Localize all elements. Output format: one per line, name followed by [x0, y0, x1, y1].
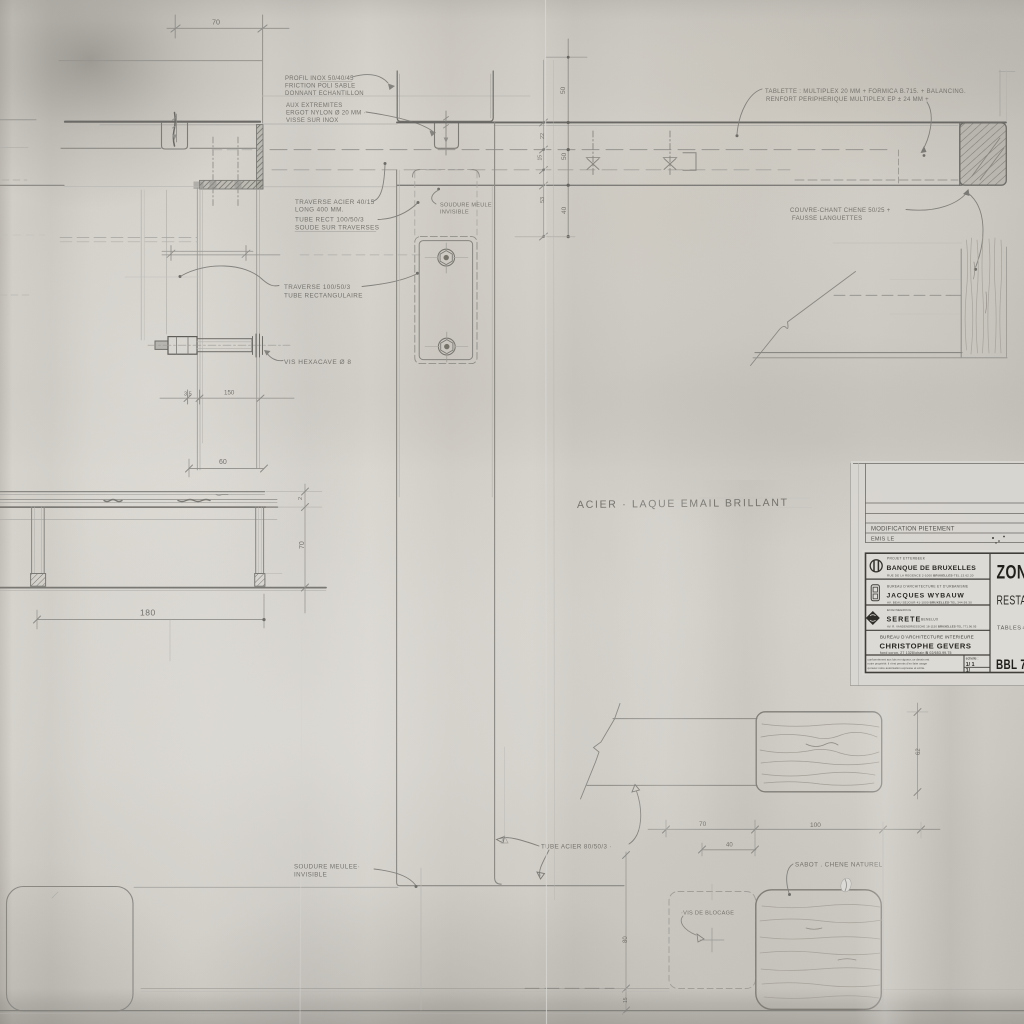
svg-text:·VIS DE BLOCAGE: ·VIS DE BLOCAGE — [681, 911, 734, 917]
svg-text:INVISIBLE: INVISIBLE — [440, 210, 469, 216]
svg-text:TABLETTE : MULTIPLEX 20 MM +: TABLETTE : MULTIPLEX 20 MM + FORMICA B.7… — [765, 89, 966, 95]
svg-text:ERGOT NYLON Ø 20 MM ·: ERGOT NYLON Ø 20 MM · — [286, 111, 366, 117]
svg-text:TUBE RECTANGULAIRE: TUBE RECTANGULAIRE — [284, 293, 363, 300]
svg-text:1/: 1/ — [966, 668, 971, 674]
svg-text:60: 60 — [219, 459, 227, 466]
svg-text:echelle :: echelle : — [966, 657, 979, 661]
svg-text:40: 40 — [561, 206, 568, 214]
svg-text:15: 15 — [623, 997, 629, 1003]
svg-text:TABLES: TABLES — [997, 626, 1022, 632]
svg-text:RENFORT PERIPHERIQUE MULTIPL: RENFORT PERIPHERIQUE MULTIPLEX EP ± 24 M… — [766, 97, 929, 103]
svg-text:RUE DE LA REGENCE 2-1000: RUE DE LA REGENCE 2-1000 BRUXELLES-TEL.1… — [887, 573, 974, 577]
svg-text:150: 150 — [224, 390, 235, 397]
svg-text:qu’avec notre autorisation exp: qu’avec notre autorisation expresse et é… — [868, 666, 926, 670]
svg-text:53: 53 — [540, 197, 546, 203]
svg-text:100: 100 — [810, 822, 821, 829]
svg-text:80: 80 — [623, 936, 629, 943]
svg-text:ZONE: ZONE — [997, 561, 1024, 583]
svg-text:INVISIBLE: INVISIBLE — [294, 872, 327, 879]
svg-text:AV. BEAU SEJOUR 41-1000 BRUXE: AV. BEAU SEJOUR 41-1000 BRUXELLES-TEL.34… — [887, 600, 972, 604]
svg-text:DONNANT ECHANTILLON: DONNANT ECHANTILLON — [285, 91, 364, 97]
svg-text:SOUDURE MEULE: SOUDURE MEULE — [440, 203, 492, 209]
svg-text:FAUSSE LANGUETTES: FAUSSE LANGUETTES — [792, 216, 862, 222]
svg-text:RESTAUR: RESTAUR — [997, 594, 1024, 608]
svg-text:15: 15 — [538, 155, 544, 161]
svg-text:70: 70 — [299, 541, 306, 549]
svg-text:fond coron, 27 1328/ohain: fond coron, 27 1328/ohain B 02/653.99.75 — [880, 651, 952, 655]
svg-text:ENGINEERING: ENGINEERING — [887, 608, 912, 612]
svg-text:50: 50 — [560, 86, 567, 94]
svg-text:EMIS LE: EMIS LE — [871, 537, 895, 543]
svg-text:JACQUES WYBAUW: JACQUES WYBAUW — [887, 593, 965, 600]
svg-text:FRICTION POLI SABLE: FRICTION POLI SABLE — [285, 84, 355, 90]
svg-text:TRAVERSE ACIER 40/15: TRAVERSE ACIER 40/15 — [295, 199, 375, 206]
svg-text:40: 40 — [726, 843, 733, 849]
svg-text:PROFIL INOX 50/40/45: PROFIL INOX 50/40/45 — [285, 76, 354, 82]
svg-text:MODIFICATION PIETEMENT: MODIFICATION PIETEMENT — [871, 527, 955, 533]
svg-text:VISSE SUR INOX: VISSE SUR INOX — [286, 118, 339, 124]
svg-text:SERETE: SERETE — [887, 615, 922, 624]
svg-text:PROJET ETTERBEEK: PROJET ETTERBEEK — [887, 557, 926, 561]
svg-text:TRAVERSE 100/50/3: TRAVERSE 100/50/3 — [284, 284, 351, 291]
svg-text:SOUDE SUR TRAVERSES: SOUDE SUR TRAVERSES — [295, 225, 379, 232]
svg-text:CHRISTOPHE GEVERS: CHRISTOPHE GEVERS — [880, 641, 972, 650]
svg-text:BENELUX: BENELUX — [921, 618, 939, 622]
svg-text:70: 70 — [212, 18, 220, 27]
svg-text:TUBE RECT 100/50/3: TUBE RECT 100/50/3 — [295, 217, 364, 224]
svg-text:BUREAU D’ARCHITECTURE INTERI: BUREAU D’ARCHITECTURE INTERIEURE — [880, 634, 974, 639]
svg-text:BANQUE DE BRUXELLES: BANQUE DE BRUXELLES — [887, 565, 977, 572]
svg-text:TUBE ACIER 80/50/3 ·: TUBE ACIER 80/50/3 · — [541, 844, 612, 851]
svg-text:AV. R. VANDENDRIESSCHE 18-1150: AV. R. VANDENDRIESSCHE 18-1150 BRUXELLES… — [887, 625, 977, 629]
svg-text:BBL 7: BBL 7 — [996, 656, 1024, 672]
svg-text:COUVRE-CHANT CHENE 50/25 +: COUVRE-CHANT CHENE 50/25 + — [790, 208, 891, 214]
svg-text:BUREAU D’ARCHITECTURE ET D’: BUREAU D’ARCHITECTURE ET D’URBANISME — [887, 585, 969, 589]
svg-text:VIS HEXACAVE Ø 8: VIS HEXACAVE Ø 8 — [284, 359, 351, 366]
svg-text:50: 50 — [561, 152, 568, 160]
svg-text:AUX EXTREMITES: AUX EXTREMITES — [286, 103, 343, 109]
svg-text:SOUDURE MEULEE·: SOUDURE MEULEE· — [294, 864, 360, 871]
svg-text:3,5: 3,5 — [184, 392, 192, 398]
svg-text:2: 2 — [298, 497, 304, 500]
svg-text:LONG 400 MM.: LONG 400 MM. — [295, 207, 344, 214]
svg-text:180: 180 — [140, 608, 156, 618]
